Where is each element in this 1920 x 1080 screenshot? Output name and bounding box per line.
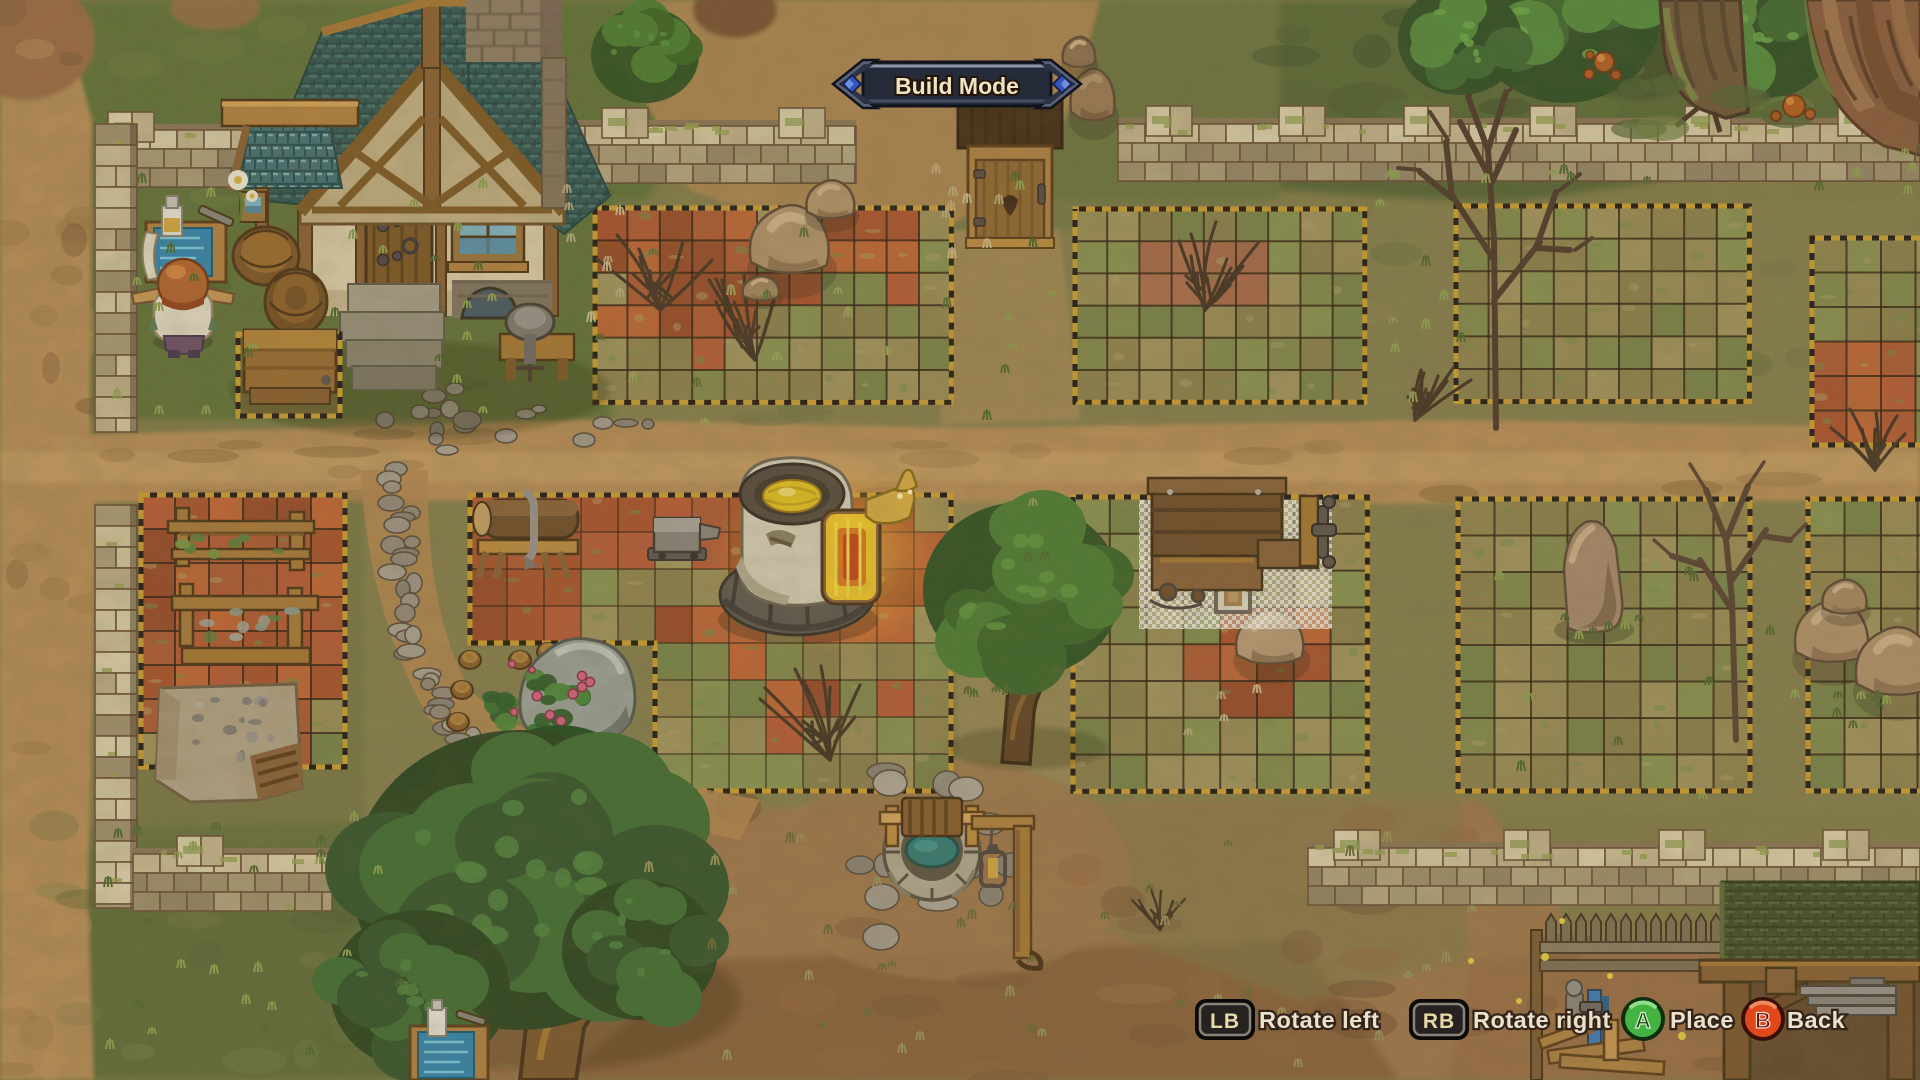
svg-text:Back: Back bbox=[1787, 1007, 1846, 1033]
svg-text:A: A bbox=[1635, 1008, 1651, 1033]
svg-text:LB: LB bbox=[1210, 1010, 1240, 1033]
svg-text:Place: Place bbox=[1670, 1007, 1734, 1033]
svg-text:RB: RB bbox=[1423, 1010, 1455, 1033]
svg-text:Rotate left: Rotate left bbox=[1259, 1007, 1379, 1033]
svg-text:Rotate right: Rotate right bbox=[1473, 1007, 1611, 1033]
svg-text:B: B bbox=[1755, 1008, 1771, 1033]
svg-text:Build Mode: Build Mode bbox=[895, 73, 1019, 99]
